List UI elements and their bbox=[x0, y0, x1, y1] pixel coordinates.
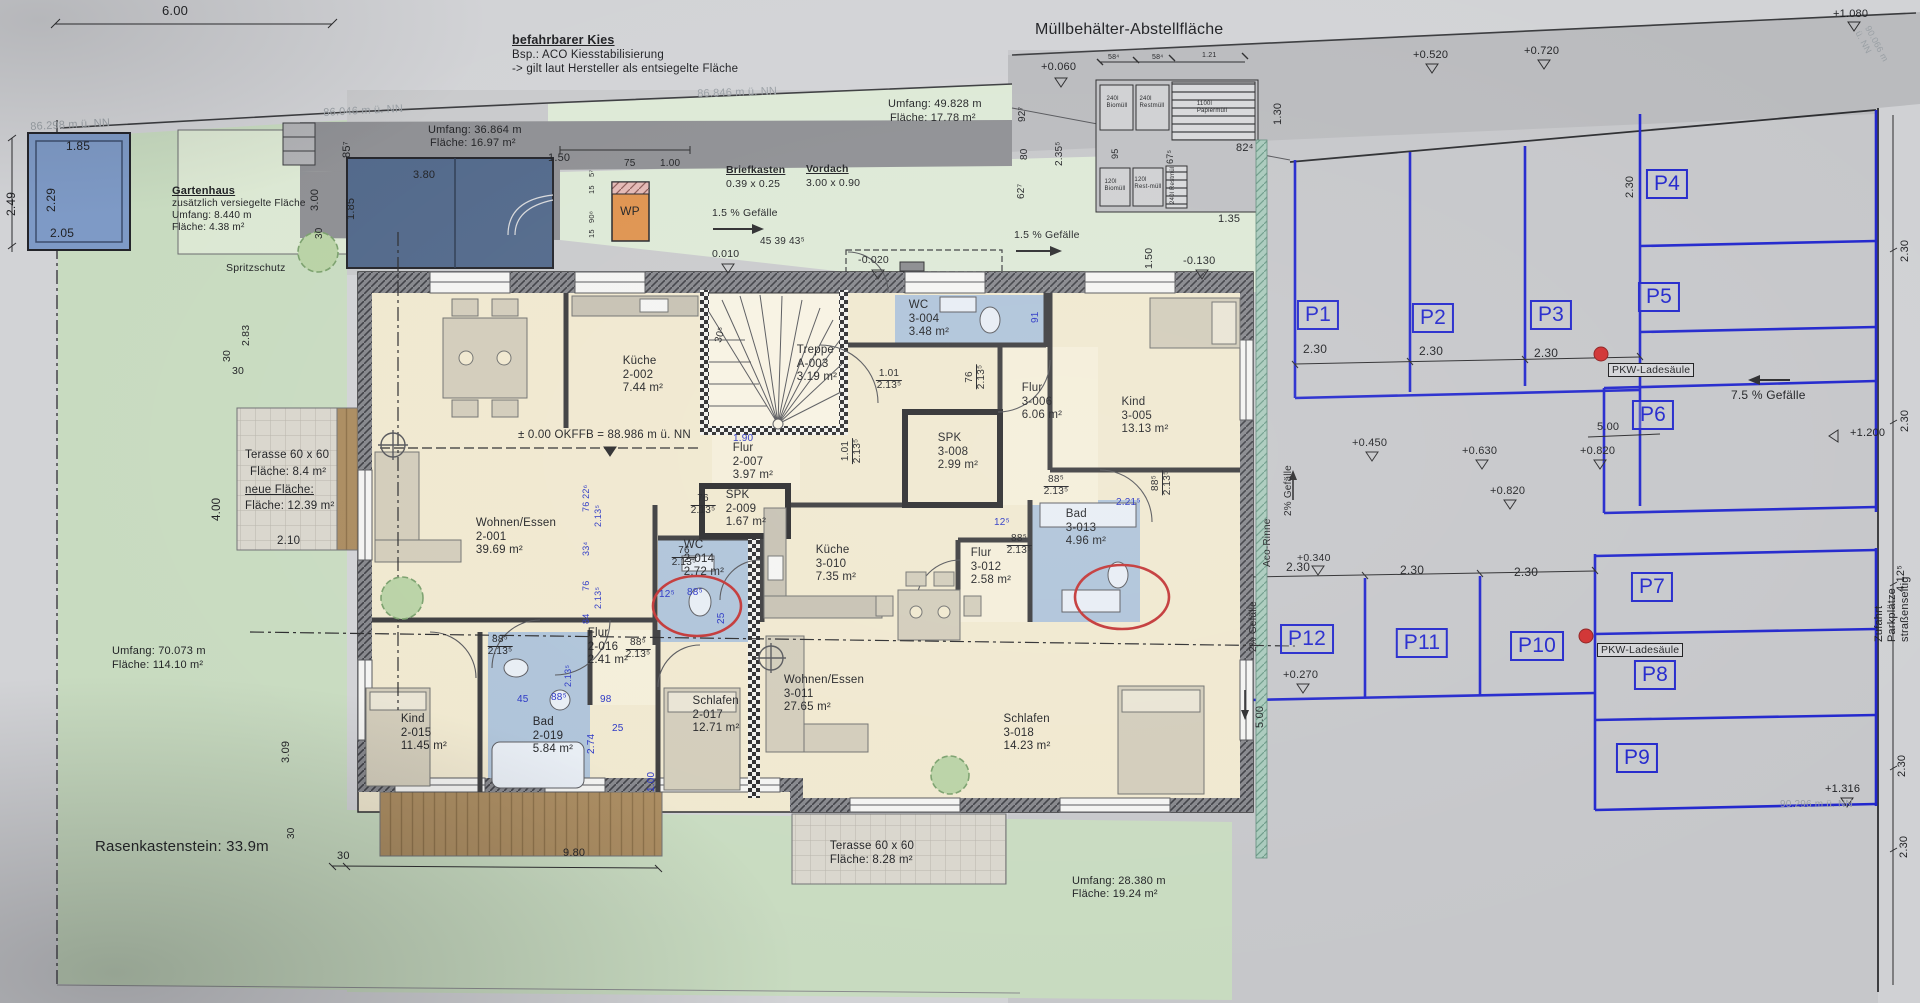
kies-umfang: Umfang: 36.864 m bbox=[428, 124, 522, 137]
rasenkastenstein: Rasenkastenstein: 33.9m bbox=[95, 838, 269, 856]
bin-120-rest: 120l Rest-müll bbox=[1134, 177, 1161, 191]
dim-15s: 15 bbox=[588, 185, 597, 194]
dim-91-blue: 91 bbox=[1030, 311, 1042, 323]
site-plan-page: 6.0086.298 m ü. NN1.852.292.492.05Garten… bbox=[0, 0, 1920, 1003]
dim-door-3006: 762.13⁵ bbox=[965, 365, 987, 390]
stall-p8: P8 bbox=[1634, 660, 1676, 690]
dim-30-terrasse: 30 bbox=[232, 365, 244, 377]
room-treppe-a003: Treppe A-003 3.19 m² bbox=[797, 344, 837, 385]
elev-p1200: +1.200 bbox=[1850, 427, 1885, 440]
dim-500h: 5.00 bbox=[1597, 421, 1619, 434]
dim-2215-blue: 2.21⁵ bbox=[1116, 497, 1141, 509]
dim-45-blue: 45 bbox=[517, 694, 529, 706]
dim-305-stair: 30⁵ bbox=[713, 326, 729, 344]
dim-230-r4: 2.30 bbox=[1898, 836, 1911, 858]
dim-230-r1: 2.30 bbox=[1899, 240, 1912, 262]
kies-note-2: -> gilt laut Hersteller als entsiegelte … bbox=[512, 63, 738, 77]
dim-chain-4: 76 bbox=[581, 581, 592, 591]
dim-door-2001b: 88⁵2.13⁵ bbox=[626, 638, 651, 660]
dim-25-blue-wc: 25 bbox=[716, 612, 728, 624]
nn-86298: 86.298 m ü. NN bbox=[30, 117, 110, 134]
room-flur-2007: Flur 2-007 3.97 m² bbox=[733, 442, 773, 483]
room-spk-3008: SPK 3-008 2.99 m² bbox=[938, 432, 978, 473]
dim-230-r2: 2.30 bbox=[1899, 410, 1912, 432]
dim-25-blue-a: 25 bbox=[612, 723, 624, 735]
gefaelle-15a: 1.5 % Gefälle bbox=[712, 207, 778, 219]
dim-chain-6: 84 bbox=[581, 614, 592, 624]
dim-400: 4.00 bbox=[211, 498, 225, 521]
elev-m0020: -0.020 bbox=[858, 254, 889, 266]
dim-chain-3: 33⁴ bbox=[581, 542, 592, 556]
muell-title: Müllbehälter-Abstellfläche bbox=[1035, 21, 1223, 40]
gefaelle-2pc-a: 2% Gefälle bbox=[1283, 465, 1295, 516]
dim-230-p4: 2.30 bbox=[1624, 176, 1637, 198]
bin-120-bio: 120l Biomüll bbox=[1104, 179, 1125, 193]
stall-p6: P6 bbox=[1632, 400, 1674, 430]
elev-p0450: +0.450 bbox=[1352, 437, 1387, 450]
dim-door-spk2009: 762.13⁵ bbox=[691, 494, 716, 516]
room-flur-2016: Flur 2-016 2.41 m² bbox=[588, 627, 628, 668]
room-kind-3005: Kind 3-005 13.13 m² bbox=[1122, 396, 1169, 437]
dim-75: 75 bbox=[624, 158, 636, 170]
stall-p9: P9 bbox=[1616, 743, 1658, 773]
stall-p7: P7 bbox=[1631, 572, 1673, 602]
strip-flaeche: Fläche: 17.78 m² bbox=[890, 112, 976, 125]
dim-927: 92⁷ bbox=[1017, 107, 1029, 122]
dim-2135-blue-kind: 2.13⁵ bbox=[563, 665, 574, 687]
dim-cistern-249: 2.49 bbox=[4, 192, 18, 216]
dim-300v: 3.00 bbox=[309, 189, 322, 211]
dim-130: 1.30 bbox=[1272, 103, 1285, 125]
dim-150a: 1.50 bbox=[548, 152, 570, 165]
dim-125-blue-wc: 12⁵ bbox=[659, 589, 675, 601]
stall-p11: P11 bbox=[1396, 628, 1448, 658]
dim-185v: 1.85 bbox=[345, 198, 358, 220]
dim-885-blue-a: 88⁵ bbox=[551, 692, 567, 704]
stall-p1: P1 bbox=[1297, 300, 1339, 330]
spritzschutz: Spritzschutz bbox=[226, 262, 286, 274]
dim-980: 9.80 bbox=[563, 847, 585, 860]
room-bad-2019: Bad 2-019 5.84 m² bbox=[533, 716, 573, 757]
dim-150v: 1.50 bbox=[1143, 248, 1155, 269]
dim-230-p11: 2.30 bbox=[1400, 563, 1424, 577]
dim-door-wc3004: 1.012.13⁵ bbox=[876, 369, 902, 391]
dim-30-links: 30 bbox=[286, 827, 298, 839]
dim-885-blue-wc: 88⁵ bbox=[687, 587, 703, 599]
dim-30-garden: 30 bbox=[221, 350, 233, 362]
gefaelle-15b: 1.5 % Gefälle bbox=[1014, 229, 1080, 241]
room-kind-2015: Kind 2-015 11.45 m² bbox=[401, 713, 447, 754]
elev-p1080: +1.080 bbox=[1833, 8, 1868, 21]
terrasse-links-3: neue Fläche: bbox=[245, 484, 314, 498]
elev-p0060: +0.060 bbox=[1041, 61, 1076, 74]
dim-cistern-205: 2.05 bbox=[50, 226, 74, 240]
dim-121: 1.21 bbox=[1202, 52, 1216, 60]
dim-584a: 58⁴ bbox=[1108, 54, 1119, 62]
room-wohnen-3011: Wohnen/Essen 3-011 27.65 m² bbox=[784, 674, 864, 715]
gefaelle-75: 7.5 % Gefälle bbox=[1731, 388, 1806, 402]
stall-p12: P12 bbox=[1280, 624, 1334, 654]
room-kueche-3010: Küche 3-010 7.35 m² bbox=[816, 544, 856, 585]
dim-584b: 58⁴ bbox=[1152, 54, 1163, 62]
kies-note-1: Bsp.: ACO Kiesstabilisierung bbox=[512, 49, 664, 63]
stall-p5: P5 bbox=[1638, 282, 1680, 312]
dim-100-blue-kind: 1.00 bbox=[646, 772, 658, 792]
dim-cistern-229: 2.29 bbox=[44, 188, 58, 212]
nn-90066: 90.066 m ü. NN bbox=[1853, 24, 1894, 76]
gefaelle-2pc-b: 2% Gefälle bbox=[1248, 601, 1260, 652]
dim-627: 62⁷ bbox=[1016, 184, 1028, 199]
dim-309: 3.09 bbox=[280, 741, 293, 763]
terrasse-links-2: Fläche: 8.4 m² bbox=[250, 466, 326, 480]
stall-p3: P3 bbox=[1530, 300, 1572, 330]
stall-p2: P2 bbox=[1412, 303, 1454, 333]
elev-p1316: +1.316 bbox=[1825, 783, 1860, 796]
bin-240-rest: 240l Restmüll bbox=[1140, 96, 1165, 110]
dim-908s: 90⁸ bbox=[588, 211, 597, 223]
dim-95: 95 bbox=[1110, 149, 1121, 159]
dim-30v: 30 bbox=[314, 227, 326, 239]
room-kueche-2002: Küche 2-002 7.44 m² bbox=[623, 355, 663, 396]
elev-p0520: +0.520 bbox=[1413, 49, 1448, 62]
dim-45-39-435: 45 39 43⁵ bbox=[760, 236, 805, 248]
strip-umfang: Umfang: 49.828 m bbox=[888, 98, 982, 111]
nn-86046: 86.046 m ü. NN bbox=[323, 103, 403, 120]
room-flur-3012: Flur 3-012 2.58 m² bbox=[971, 547, 1011, 588]
gartenhaus-umfang: Umfang: 8.440 m bbox=[172, 210, 252, 222]
dim-98-blue: 98 bbox=[600, 694, 612, 706]
dim-230-r3: 2.30 bbox=[1896, 755, 1909, 777]
pkw-ladesaeule-2: PKW-Ladesäule bbox=[1597, 643, 1683, 657]
dim-230-p3: 2.30 bbox=[1534, 346, 1558, 360]
dim-380: 3.80 bbox=[413, 169, 435, 182]
briefkasten-title: Briefkasten bbox=[726, 164, 785, 176]
dim-4125: 4.12⁵ bbox=[1895, 565, 1908, 592]
dim-door-2001a: 88⁵2.13⁵ bbox=[488, 635, 513, 657]
dim-675: 67⁵ bbox=[1165, 150, 1176, 164]
wp-label: WP bbox=[620, 204, 640, 218]
vordach-size: 3.00 x 0.90 bbox=[806, 177, 860, 189]
room-wc-3004: WC 3-004 3.48 m² bbox=[909, 299, 949, 340]
room-flur-3006: Flur 3-006 6.06 m² bbox=[1022, 382, 1062, 423]
dim-500v: 5.00 bbox=[1254, 706, 1267, 728]
dim-274-blue: 2.74 bbox=[586, 734, 598, 754]
haus-umfang: Umfang: 70.073 m bbox=[112, 645, 206, 658]
bin-240-bio: 240l Biomüll bbox=[1106, 96, 1127, 110]
elev-p0630: +0.630 bbox=[1462, 445, 1497, 458]
kies-flaeche: Fläche: 16.97 m² bbox=[430, 137, 516, 150]
bin-240-rest-2: 240l Restmüll bbox=[1170, 165, 1177, 204]
dim-600: 6.00 bbox=[162, 3, 188, 18]
elev-0010: 0.010 bbox=[712, 248, 739, 260]
elev-p0340: +0.340 bbox=[1297, 552, 1331, 564]
bin-1100-papier: 1100l Papiermüll bbox=[1197, 101, 1227, 115]
dim-210: 2.10 bbox=[277, 535, 300, 549]
elev-p0820a: +0.820 bbox=[1580, 445, 1615, 458]
room-wohnen-2001: Wohnen/Essen 2-001 39.69 m² bbox=[476, 517, 556, 558]
elev-p0820b: +0.820 bbox=[1490, 485, 1525, 498]
room-bad-3013: Bad 3-013 4.96 m² bbox=[1066, 508, 1106, 549]
elev-p0270: +0.270 bbox=[1283, 669, 1318, 682]
vordach-title: Vordach bbox=[806, 163, 849, 175]
dim-15s2: 15 bbox=[588, 229, 597, 238]
haus-flaeche: Fläche: 114.10 m² bbox=[112, 659, 203, 672]
elev-p0720: +0.720 bbox=[1524, 45, 1559, 58]
dim-230-p10: 2.30 bbox=[1514, 565, 1538, 579]
terrasse-links-1: Terasse 60 x 60 bbox=[245, 449, 329, 463]
aco-rinne: Aco-Rinne bbox=[1262, 519, 1274, 568]
elev-m0130: -0.130 bbox=[1183, 255, 1215, 268]
dim-824: 82⁴ bbox=[1236, 142, 1254, 155]
dim-80: 80 bbox=[1019, 148, 1031, 160]
briefkasten-size: 0.39 x 0.25 bbox=[726, 178, 780, 190]
dim-125-blue-3012: 12⁵ bbox=[994, 517, 1010, 529]
stall-p10: P10 bbox=[1510, 631, 1564, 661]
dim-cistern-185: 1.85 bbox=[66, 139, 90, 153]
dim-100a: 1.00 bbox=[660, 158, 680, 170]
dim-door-wc2014: 762.13⁵ bbox=[672, 546, 697, 568]
terrasse-umfang: Umfang: 28.380 m Fläche: 19.24 m² bbox=[1072, 875, 1166, 901]
pkw-ladesaeule-1: PKW-Ladesäule bbox=[1608, 363, 1694, 377]
terrasse-rechts: Terasse 60 x 60 Fläche: 8.28 m² bbox=[830, 840, 914, 867]
nn-90296: 90.296 m ü. NN bbox=[1780, 799, 1853, 811]
nn-86846: 86.846 m ü. NN bbox=[697, 85, 777, 101]
terrasse-links-4: Fläche: 12.39 m² bbox=[245, 500, 335, 514]
gartenhaus-flaeche: Fläche: 4.38 m² bbox=[172, 222, 244, 234]
okffb-note: ± 0.00 OKFFB = 88.986 m ü. NN bbox=[518, 429, 691, 443]
dim-857: 85⁷ bbox=[341, 141, 354, 158]
dim-230-p2: 2.30 bbox=[1419, 344, 1443, 358]
dim-30-unten: 30 bbox=[337, 850, 350, 863]
dim-57s: 5⁷ bbox=[588, 170, 597, 177]
dim-230-p1: 2.30 bbox=[1303, 342, 1327, 356]
dim-door-3005: 88⁵2.13⁵ bbox=[1151, 471, 1173, 496]
gartenhaus-title: Gartenhaus bbox=[172, 185, 235, 198]
gartenhaus-note: zusätzlich versiegelte Fläche bbox=[172, 198, 306, 210]
stall-p4: P4 bbox=[1646, 169, 1688, 199]
dim-door-treppe: 1.012.13⁵ bbox=[841, 438, 863, 464]
dim-135: 1.35 bbox=[1218, 213, 1240, 226]
room-schlafen-3018: Schlafen 3-018 14.23 m² bbox=[1004, 713, 1051, 754]
dim-door-3012: 88⁵2.13⁵ bbox=[1007, 534, 1032, 556]
dim-door-3013: 88⁵2.13⁵ bbox=[1044, 475, 1069, 497]
dim-283: 2.83 bbox=[240, 325, 252, 346]
room-schlafen-2017: Schlafen 2-017 12.71 m² bbox=[693, 695, 740, 736]
dim-chain-5: 2.13⁵ bbox=[593, 587, 604, 609]
dim-chain-1: 76 22⁶ bbox=[581, 485, 592, 512]
dim-2355: 2.35⁵ bbox=[1054, 141, 1066, 166]
kies-title: befahrbarer Kies bbox=[512, 33, 615, 48]
room-spk-2009: SPK 2-009 1.67 m² bbox=[726, 489, 766, 530]
plan-labels: 6.0086.298 m ü. NN1.852.292.492.05Garten… bbox=[0, 0, 1920, 1003]
dim-chain-2: 2.13⁵ bbox=[593, 505, 604, 527]
